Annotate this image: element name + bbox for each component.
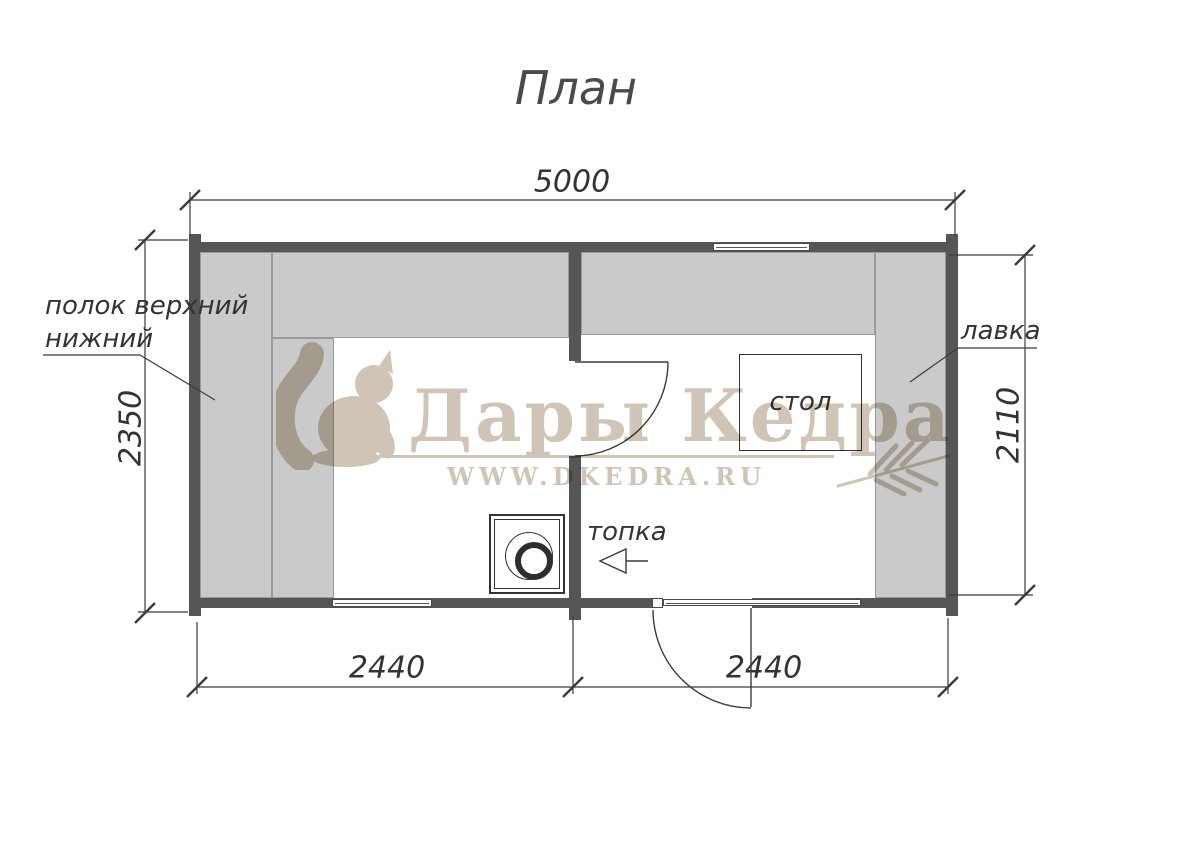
floor-plan-canvas: План стол (0, 0, 1200, 848)
shelf-label-line1: полок верхний (45, 290, 248, 323)
dim-left-height: 2350 (114, 390, 149, 466)
dimension-ticks (135, 190, 1035, 697)
firebox-arrow-icon (600, 549, 648, 573)
dim-overall-width: 5000 (534, 165, 610, 200)
shelf-label: полок верхний нижний (45, 290, 248, 356)
shelf-label-line2: нижний (45, 323, 248, 356)
dim-bottom-right-width: 2440 (726, 651, 802, 686)
bench-label: лавка (961, 315, 1041, 348)
firebox-label: топка (587, 516, 667, 549)
dimension-lines (138, 192, 1033, 694)
partition-door-swing (575, 362, 668, 456)
dim-right-height: 2110 (992, 387, 1027, 463)
dim-bottom-left-width: 2440 (349, 651, 425, 686)
